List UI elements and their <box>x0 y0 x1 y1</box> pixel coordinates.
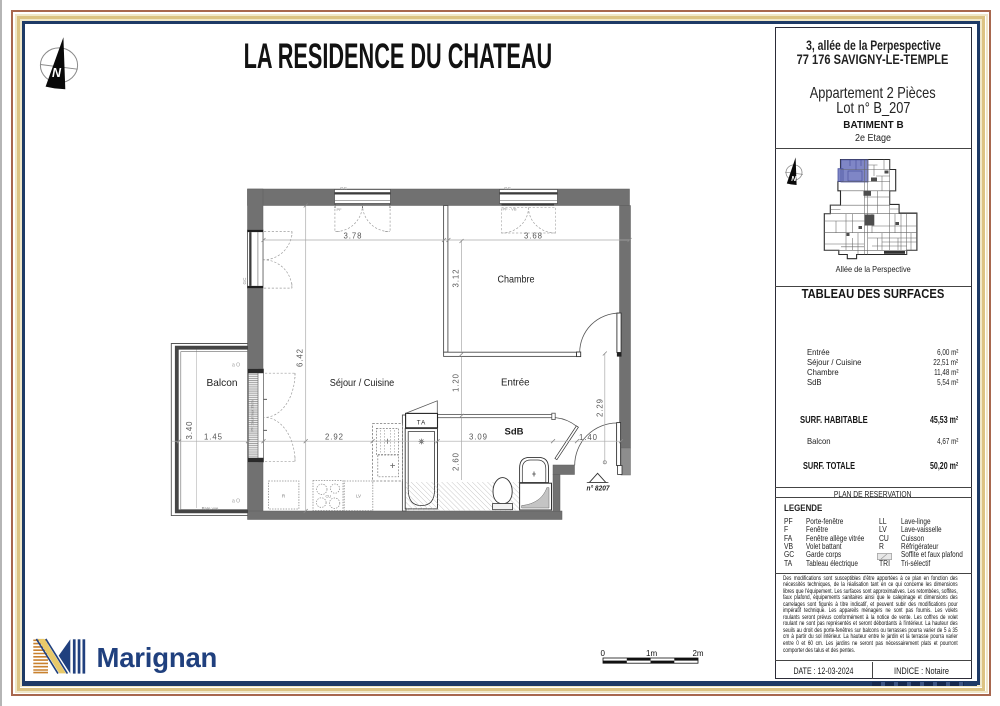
svg-text:Balcon: Balcon <box>207 378 238 389</box>
svg-text:1.45: 1.45 <box>204 433 223 442</box>
svg-text:3.78: 3.78 <box>344 232 362 241</box>
svg-text:Pare vue: Pare vue <box>202 506 219 511</box>
svg-text:1m: 1m <box>646 649 657 658</box>
svg-text:Entrée: Entrée <box>501 378 530 389</box>
svg-text:SdB: SdB <box>505 427 524 438</box>
svg-text:GC: GC <box>242 277 247 285</box>
svg-text:a O: a O <box>232 363 240 369</box>
svg-text:0: 0 <box>600 649 605 658</box>
svg-text:Séjour / Cuisine: Séjour / Cuisine <box>330 378 395 389</box>
svg-text:CU: CU <box>326 495 332 499</box>
svg-text:GC: GC <box>340 186 348 191</box>
svg-text:TA: TA <box>417 419 426 426</box>
svg-text:3.12: 3.12 <box>452 270 461 288</box>
svg-text:a O: a O <box>232 499 240 505</box>
svg-text:Chambre: Chambre <box>498 275 535 286</box>
svg-text:R: R <box>282 494 286 499</box>
svg-text:2.92: 2.92 <box>325 433 343 442</box>
svg-text:GC: GC <box>504 186 512 191</box>
svg-text:LV: LV <box>356 494 361 499</box>
svg-text:PF: PF <box>337 207 343 212</box>
svg-text:3.09: 3.09 <box>469 433 487 442</box>
svg-text:PF - VB: PF - VB <box>503 207 517 212</box>
svg-text:Marignan: Marignan <box>97 642 218 673</box>
svg-text:6.42: 6.42 <box>296 349 305 367</box>
svg-text:n° 8207: n° 8207 <box>587 484 611 493</box>
svg-text:N: N <box>52 66 62 80</box>
svg-text:PF : Seuil max 35cm: PF : Seuil max 35cm <box>251 400 255 431</box>
svg-text:2.29: 2.29 <box>596 399 605 417</box>
svg-text:2.60: 2.60 <box>452 452 461 471</box>
svg-text:3.40: 3.40 <box>185 421 194 440</box>
svg-text:1.20: 1.20 <box>452 373 461 392</box>
svg-text:3.68: 3.68 <box>524 232 542 241</box>
svg-text:1.40: 1.40 <box>579 433 598 442</box>
svg-text:2m: 2m <box>692 649 703 658</box>
